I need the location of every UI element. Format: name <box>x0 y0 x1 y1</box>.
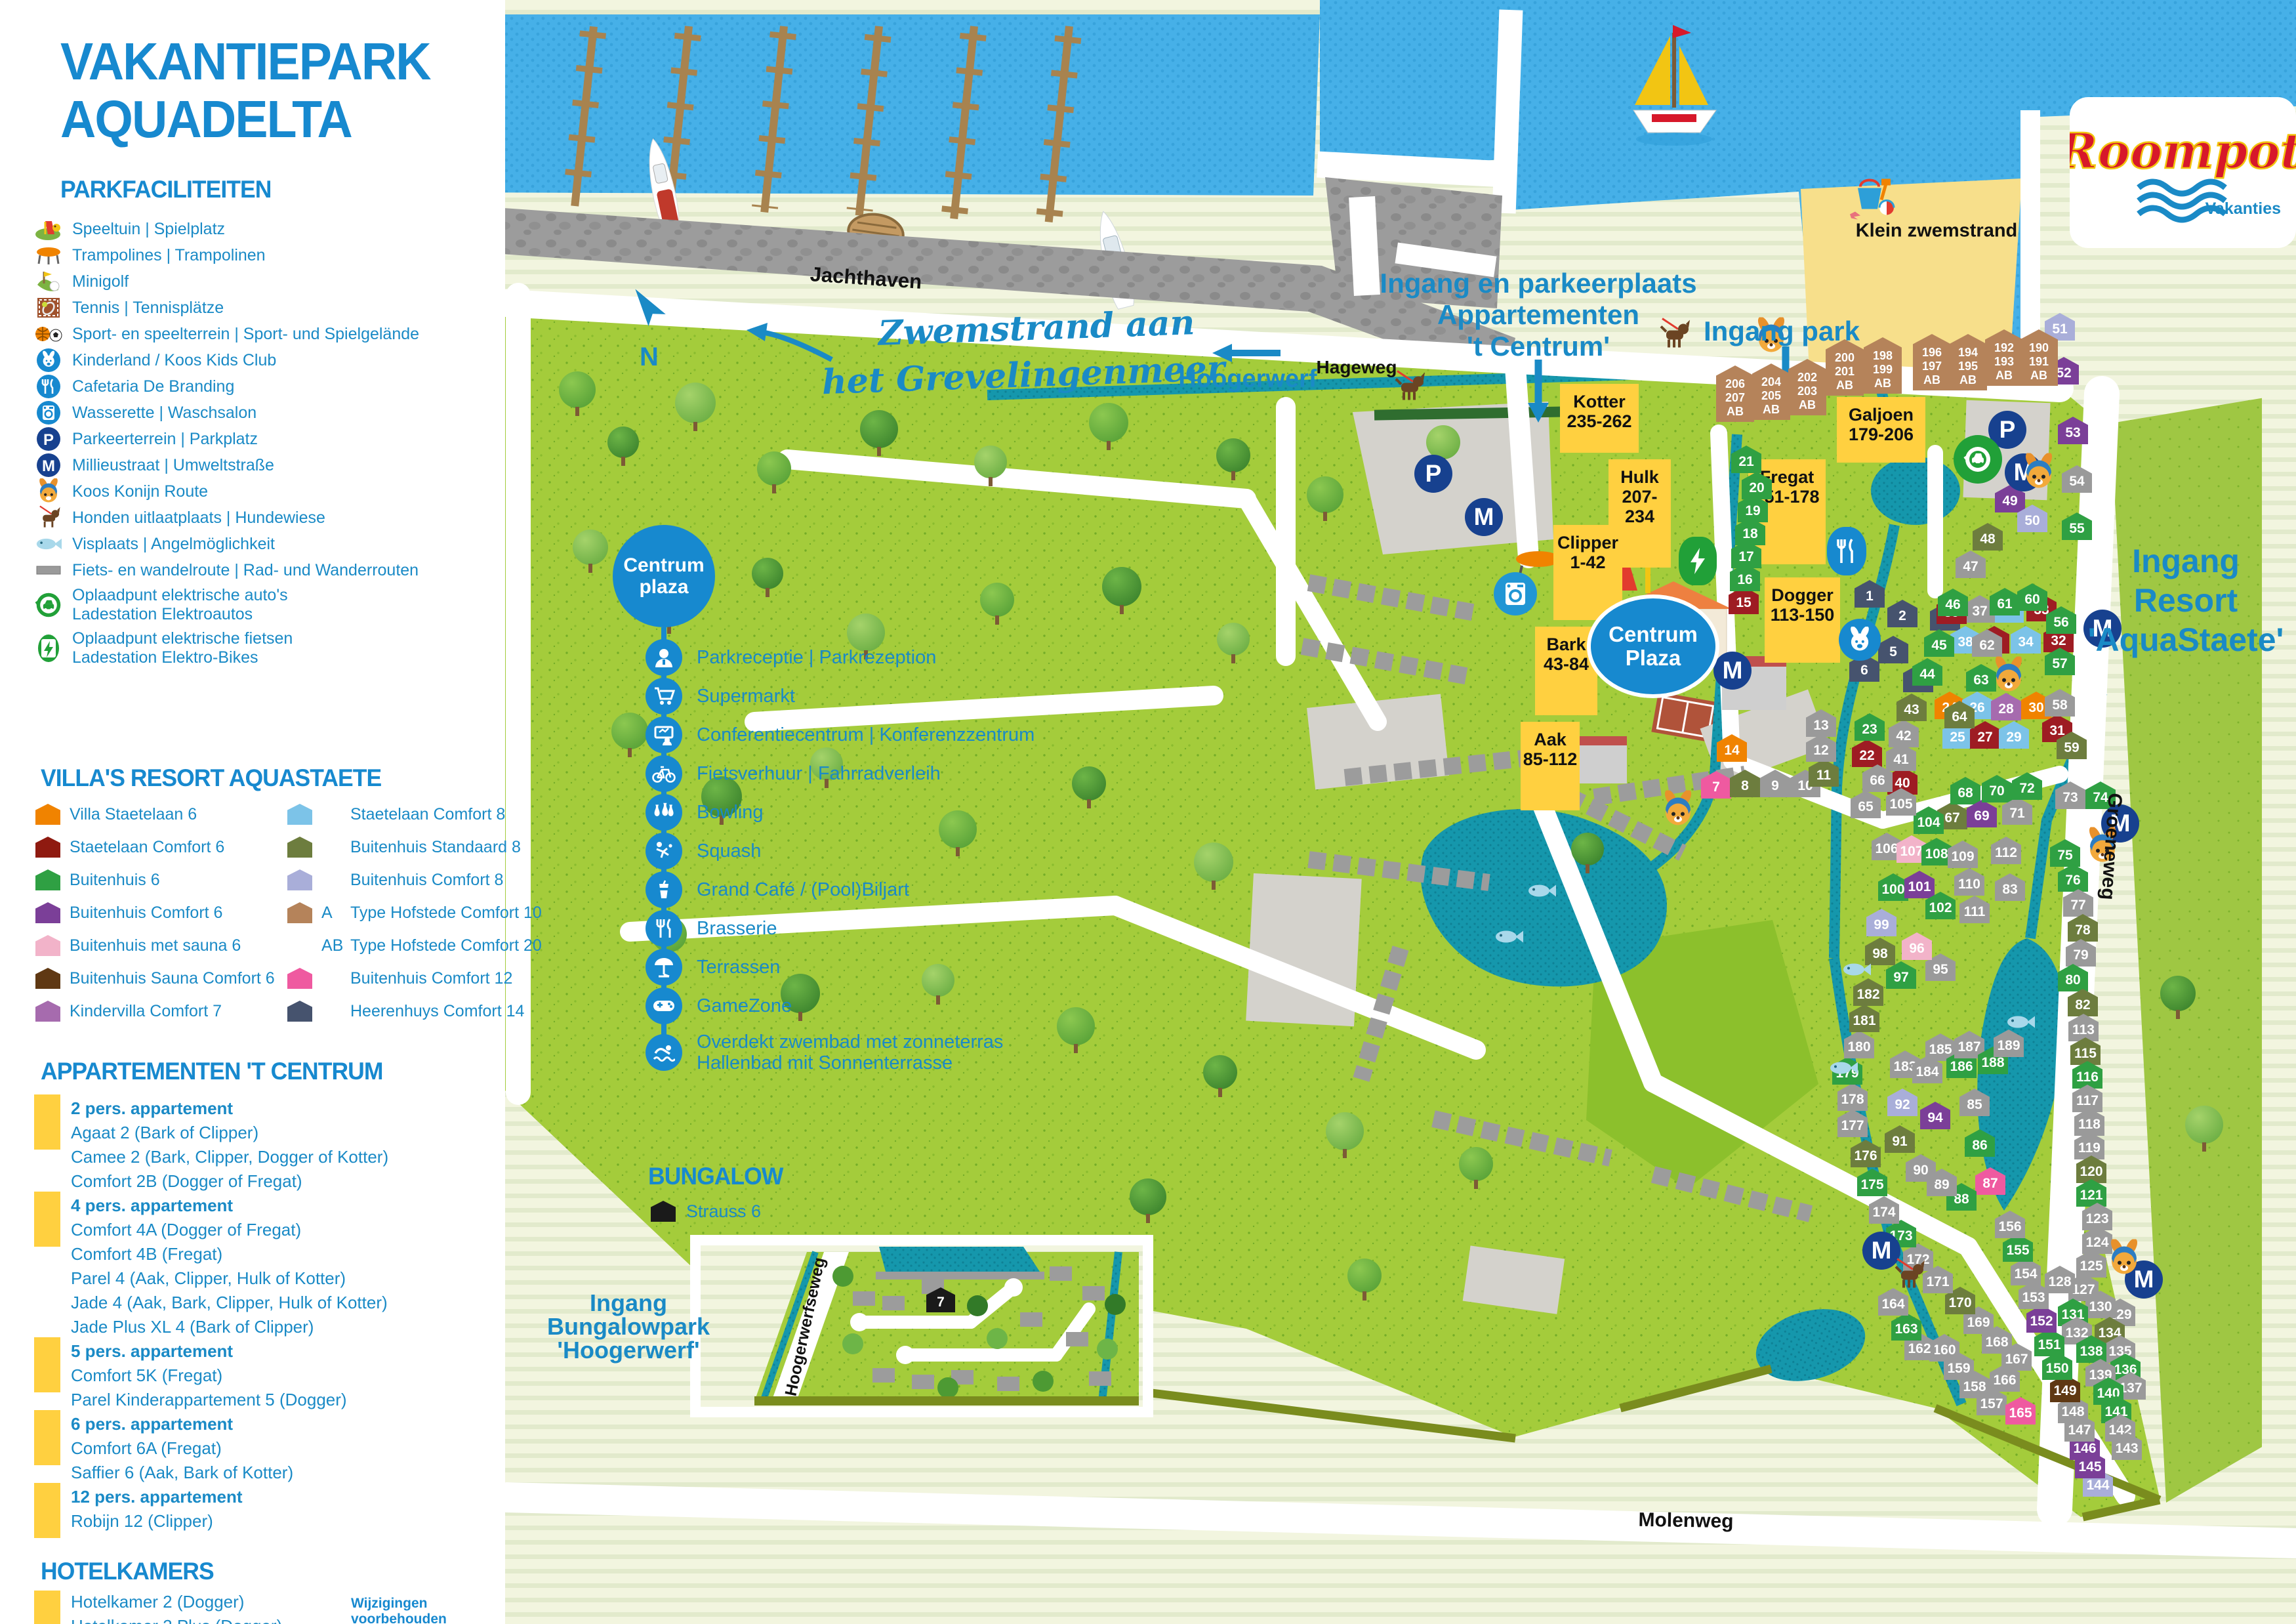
plaza-item-brasserie: Brasserie <box>646 910 777 947</box>
hofstede-house-marker: 196197AB <box>1913 334 1951 390</box>
supermarket-icon <box>646 678 682 715</box>
apartment-block: Dogger113-150 <box>1765 577 1840 663</box>
tree-icon <box>1307 476 1343 521</box>
apartment-row: Comfort 4A (Dogger of Fregat) <box>71 1220 301 1240</box>
ingang-park-label: Ingang park <box>1704 316 1860 347</box>
facility-ev-fiets: Oplaadpunt elektrische fietsenLadestatio… <box>34 629 293 667</box>
villa-legend-row: Villa Staetelaan 6 <box>35 802 197 827</box>
parking-marker: P <box>1414 455 1452 493</box>
tree-icon <box>1089 403 1128 450</box>
apartment-row: Camee 2 (Bark, Clipper, Dogger of Kotter… <box>71 1147 388 1167</box>
apartment-swatch-6p <box>34 1410 60 1465</box>
villa-legend-row: AType Hofstede Comfort 10 <box>287 900 542 925</box>
facility-minigolf: Minigolf <box>34 269 129 294</box>
facility-ev-auto: Oplaadpunt elektrische auto'sLadestation… <box>34 586 288 624</box>
ev-bike-map-icon <box>1679 537 1717 585</box>
tree-icon <box>922 964 954 1005</box>
plaza-item-reception: Parkreceptie | Parkrezeption <box>646 639 936 676</box>
bungalow-heading: BUNGALOW <box>648 1163 783 1190</box>
villa-legend-row: ABType Hofstede Comfort 20 <box>287 933 542 958</box>
restaurant-map-icon <box>1827 527 1866 575</box>
facility-speeltuin: Speeltuin | Spielplatz <box>34 217 225 241</box>
reception-icon <box>646 639 682 676</box>
tree-icon <box>2160 976 2196 1019</box>
plaza-item-grandcafe: Grand Café / (Pool)Biljart <box>646 871 909 908</box>
hofstede-house-marker: 202203AB <box>1788 359 1826 415</box>
plaza-item-bowling: Bowling <box>646 794 764 831</box>
villa-legend-row: Buitenhuis Comfort 8 <box>287 867 503 892</box>
fish-icon <box>1527 883 1556 902</box>
apartment-swatch-2p <box>34 1094 60 1150</box>
beach-toys-icon <box>1849 174 1901 223</box>
parking-icon: P <box>34 427 63 451</box>
tree-icon <box>1217 623 1250 663</box>
hofstede-house-marker: 204205AB <box>1752 364 1790 420</box>
hofstede-house-marker: 198199AB <box>1864 337 1902 394</box>
tree-icon <box>860 410 898 456</box>
koos-rabbit-icon <box>1660 791 1696 832</box>
apartment-block: Aak85-112 <box>1521 722 1580 810</box>
ingang-parkeerplaats-label-1: Ingang en parkeerplaats <box>1380 268 1696 299</box>
dog-icon <box>34 505 63 530</box>
resort-label-3: 'AquaStaete' <box>2088 621 2284 659</box>
bungalow-inset <box>695 1240 1148 1412</box>
tree-icon <box>1216 438 1250 480</box>
tree-icon <box>559 371 596 416</box>
svg-text:Vakanties: Vakanties <box>2205 199 2281 218</box>
svg-text:Roompot: Roompot <box>2070 123 2296 180</box>
tree-icon <box>1203 1055 1237 1097</box>
tree-icon <box>974 446 1007 486</box>
cafe-icon <box>646 871 682 908</box>
resort-label-1: Ingang <box>2132 542 2240 580</box>
apartment-block: Kotter235-262 <box>1560 384 1639 453</box>
ev-car-icon <box>34 593 63 617</box>
apartment-row: Parel Kinderappartement 5 (Dogger) <box>71 1390 347 1410</box>
hotel-row: Hotelkamer 2 Plus (Dogger) <box>71 1616 282 1624</box>
tree-icon <box>611 713 648 757</box>
klein-zwemstrand-label: Klein zwemstrand <box>1856 220 2018 242</box>
laundry-map-icon <box>1494 572 1537 615</box>
tree-icon <box>1072 766 1106 808</box>
hotel-swatch <box>34 1591 60 1624</box>
villas-heading: VILLA'S RESORT AQUASTAETE <box>41 764 381 792</box>
apartment-row: 5 pers. appartement <box>71 1341 233 1362</box>
tree-icon <box>2185 1106 2223 1152</box>
hotelkamers-heading: HOTELKAMERS <box>41 1558 214 1585</box>
facility-millieustraat: M Millieustraat | Umweltstraße <box>34 453 274 478</box>
tree-icon <box>757 451 791 493</box>
bike-rental-icon <box>646 755 682 792</box>
apartment-row: 12 pers. appartement <box>71 1487 243 1507</box>
villa-legend-row: Buitenhuis Sauna Comfort 6 <box>35 966 275 991</box>
fish-icon <box>1842 962 1871 981</box>
fish-icon <box>2006 1014 2035 1033</box>
tree-icon <box>573 530 608 573</box>
ev-bike-icon <box>34 636 63 661</box>
tree-icon <box>752 558 783 597</box>
kids-club-map-icon <box>1839 619 1881 661</box>
playground-icon <box>34 217 63 241</box>
plaza-item-gamezone: GameZone <box>646 988 792 1024</box>
centrum-plaza-legend-badge: Centrumplaza <box>613 525 715 627</box>
facility-visplaats: Visplaats | Angelmöglichkeit <box>34 531 275 556</box>
pool-icon <box>646 1034 682 1071</box>
compass-n-label: N <box>640 343 659 372</box>
tree-icon <box>939 810 977 856</box>
waste-icon: M <box>34 453 63 478</box>
facility-parkeerterrein: P Parkeerterrein | Parkplatz <box>34 427 258 451</box>
hofstede-house-marker: 206207AB <box>1716 365 1754 422</box>
dog-icon <box>1656 318 1692 355</box>
resort-label-2: Resort <box>2134 581 2238 619</box>
koos-rabbit-icon <box>2106 1239 2142 1281</box>
squash-icon <box>646 833 682 869</box>
facility-tennis: Tennis | Tennisplätze <box>34 295 224 320</box>
gamezone-icon <box>646 988 682 1024</box>
apartment-row: Comfort 2B (Dogger of Fregat) <box>71 1171 302 1192</box>
apartment-row: 4 pers. appartement <box>71 1196 233 1216</box>
facility-honden: Honden uitlaatplaats | Hundewiese <box>34 505 325 530</box>
fish-icon <box>34 531 63 556</box>
centrum-plaza-map-badge: CentrumPlaza <box>1587 594 1719 698</box>
apartment-swatch-12p <box>34 1483 60 1538</box>
apartment-row: Jade 4 (Aak, Bark, Clipper, Hulk of Kott… <box>71 1293 388 1313</box>
hotel-row: Hotelkamer 2 (Dogger) <box>71 1592 244 1612</box>
apartment-row: Saffier 6 (Aak, Bark of Kotter) <box>71 1463 293 1483</box>
tree-icon <box>1459 1147 1493 1189</box>
facility-fietsroute: Fiets- en wandelroute | Rad- und Wanderr… <box>34 558 419 583</box>
facility-cafetaria: Cafetaria De Branding <box>34 374 234 399</box>
apartment-row: 6 pers. appartement <box>71 1414 233 1434</box>
ingang-parkeerplaats-label-2: Appartementen <box>1437 299 1639 331</box>
parkfaciliteiten-heading: PARKFACILITEITEN <box>60 176 271 203</box>
apartment-swatch-5p <box>34 1337 60 1392</box>
dog-icon <box>1891 1258 1927 1295</box>
apartment-row: Parel 4 (Aak, Clipper, Hulk of Kotter) <box>71 1268 346 1289</box>
plaza-item-zwembad: Overdekt zwembad met zonneterrasHallenba… <box>646 1031 1003 1073</box>
apartment-row: Comfort 4B (Fregat) <box>71 1244 222 1264</box>
hofstede-house-marker: 190191AB <box>2020 329 2058 386</box>
laundry-icon <box>34 400 63 425</box>
tree-icon <box>1347 1259 1382 1301</box>
plaza-item-conferentie: Conferentiecentrum | Konferenzzentrum <box>646 717 1035 753</box>
park-title: VAKANTIEPARKAQUADELTA <box>60 33 430 148</box>
apartment-row: Jade Plus XL 4 (Bark of Clipper) <box>71 1317 314 1337</box>
strauss-swatch <box>651 1201 676 1222</box>
trampoline-icon <box>34 243 63 268</box>
hoogerwerf-label: Hoogerwerf <box>1178 365 1317 394</box>
facility-trampolines: Trampolines | Trampolinen <box>34 243 266 268</box>
facility-wasserette: Wasserette | Waschsalon <box>34 400 256 425</box>
conference-icon <box>646 717 682 753</box>
ingang-bungalowpark-label-3: 'Hoogerwerf' <box>557 1337 699 1364</box>
svg-text:P: P <box>43 431 54 449</box>
plaza-item-squash: Squash <box>646 833 761 869</box>
appartementen-heading: APPARTEMENTEN 'T CENTRUM <box>41 1058 382 1085</box>
koos-rabbit-icon <box>1991 657 2026 698</box>
villa-legend-row: Buitenhuis met sauna 6 <box>35 933 241 958</box>
tree-icon <box>1326 1112 1364 1158</box>
hofstede-house-marker: 192193AB <box>1985 329 2023 386</box>
tree-icon <box>607 427 639 466</box>
hofstede-house-marker: 194195AB <box>1949 334 1987 390</box>
tree-icon <box>1194 843 1233 890</box>
villa-legend-row: Buitenhuis Standaard 8 <box>287 835 521 860</box>
milieustraat-marker: M <box>1713 652 1752 690</box>
villa-legend-row: Heerenhuys Comfort 14 <box>287 999 524 1024</box>
roompot-logo: Roompot Vakanties <box>2070 97 2296 251</box>
brasserie-icon <box>646 910 682 947</box>
villa-legend-row: Buitenhuis Comfort 12 <box>287 966 512 991</box>
facility-sportterrein: Sport- en speelterrein | Sport- und Spie… <box>34 322 419 346</box>
apartment-swatch-4p <box>34 1192 60 1247</box>
milieustraat-marker: M <box>1465 498 1503 536</box>
bungalow-legend-row: Strauss 6 <box>651 1201 761 1222</box>
apartment-row: Robijn 12 (Clipper) <box>71 1511 213 1531</box>
sports-balls-icon <box>34 322 63 346</box>
route-icon <box>34 558 63 583</box>
apartment-block: Galjoen179-206 <box>1837 397 1925 463</box>
tree-icon <box>1102 567 1141 614</box>
villa-legend-row: Buitenhuis 6 <box>35 867 160 892</box>
cafeteria-icon <box>34 374 63 399</box>
apartment-row: Comfort 6A (Fregat) <box>71 1438 222 1459</box>
tennis-icon <box>34 295 63 320</box>
bowling-icon <box>646 794 682 831</box>
apartment-row: Comfort 5K (Fregat) <box>71 1365 222 1386</box>
plaza-item-fietsverhuur: Fietsverhuur | Fahrradverleih <box>646 755 941 792</box>
hofstede-house-marker: 200201AB <box>1826 339 1864 396</box>
ingang-parkeerplaats-label-3: 't Centrum' <box>1467 331 1610 362</box>
molenweg-label: Molenweg <box>1638 1509 1734 1533</box>
rabbit-route-icon <box>34 479 63 504</box>
facility-kinderland: Kinderland / Koos Kids Club <box>34 348 276 373</box>
park-map-poster: Kotter235-262Galjoen179-206Hulk207-234Fr… <box>0 0 2296 1624</box>
apartment-row: 2 pers. appartement <box>71 1098 233 1119</box>
apartment-row: Agaat 2 (Bark of Clipper) <box>71 1123 258 1143</box>
tree-icon <box>1057 1007 1095 1053</box>
plaza-item-terrassen: Terrassen <box>646 949 780 986</box>
villa-legend-row: Buitenhuis Comfort 6 <box>35 900 222 925</box>
kids-club-icon <box>34 348 63 373</box>
plaza-item-supermarkt: Supermarkt <box>646 678 795 715</box>
facility-koos-route: Koos Konijn Route <box>34 479 208 504</box>
tree-icon <box>675 383 716 431</box>
villa-legend-row: Kindervilla Comfort 7 <box>35 999 222 1024</box>
ev-car-map-icon <box>1954 435 2002 484</box>
tree-icon <box>1571 833 1604 873</box>
fish-icon <box>1494 929 1523 948</box>
disclaimer-note: Wijzigingen voorbehouden <box>351 1596 505 1624</box>
terrace-icon <box>646 949 682 986</box>
legend-panel: VAKANTIEPARKAQUADELTA PARKFACILITEITEN S… <box>0 0 505 1624</box>
koos-rabbit-icon <box>2021 453 2057 495</box>
minigolf-icon <box>34 269 63 294</box>
hageweg-label: Hageweg <box>1317 357 1397 378</box>
tree-icon <box>1130 1178 1166 1223</box>
villa-legend-row: Staetelaan Comfort 8 <box>287 802 505 827</box>
villa-legend-row: Staetelaan Comfort 6 <box>35 835 224 860</box>
tree-icon <box>980 583 1014 625</box>
svg-text:M: M <box>42 457 55 475</box>
fish-icon <box>1829 1060 1858 1079</box>
